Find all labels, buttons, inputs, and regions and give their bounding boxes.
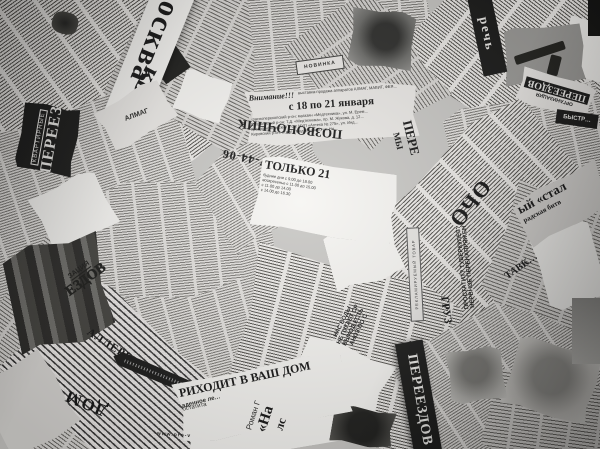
face-photo: [445, 344, 508, 405]
almag-label: АЛМАГ: [123, 107, 149, 122]
scrap-pere-my: ПЕРЕ МЫ: [383, 108, 430, 171]
reklama-label: РЕКЛАМИРУЕМЫЙ ТОВАР: [411, 239, 420, 309]
typewriter-photo: [347, 7, 417, 71]
bystro-label: БЫСТР…: [563, 114, 592, 124]
scrap-tolko21: ТОЛЬКО 21 будние дни с 9.00 до 18.00 вос…: [249, 153, 401, 246]
dark-corner-fragment: [588, 0, 600, 36]
photo-fragment: [572, 298, 600, 364]
ls-letters: лс: [271, 416, 289, 432]
gruz-headline: ГРУЗ: [438, 296, 454, 325]
newspaper-collage-photo: осква кв АЛМАГ КВАРТИРНЫЕ ПЕРЕЕЗ речь НО…: [0, 0, 600, 449]
rech-headline: речь: [476, 15, 499, 52]
revolver-grip: [546, 54, 562, 76]
novinka-label: НОВИНКА: [304, 60, 337, 70]
url-text: www.pro-v: [157, 431, 192, 439]
